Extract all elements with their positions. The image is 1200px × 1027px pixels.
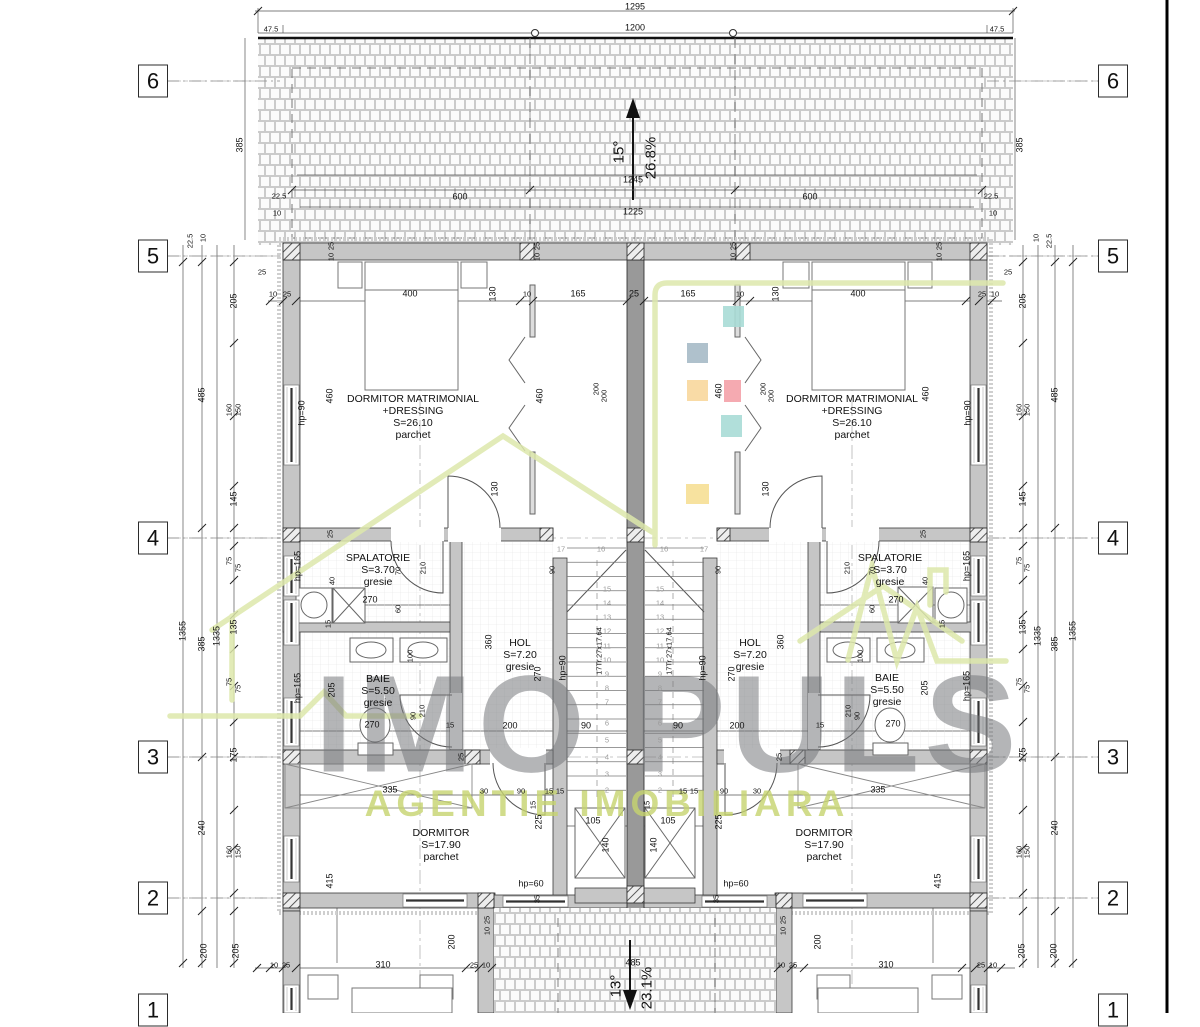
dim-label: 10 [269,290,277,298]
dim-label: 270 [364,721,379,730]
dim-label: 10 [199,234,207,242]
dim-label: 130 [762,481,771,496]
dim-label: 10 [729,253,737,261]
dim-label: 15 [603,585,611,593]
dim-label: 15 [679,787,687,795]
dim-label: 200 [448,934,457,949]
dim-label: 90 [409,712,417,720]
dim-label: 210 [419,562,427,575]
dim-label: 60 [394,605,402,613]
dim-label: 105 [585,817,600,826]
dim-label: 1295 [625,3,645,12]
dim-label: 13° [609,975,624,998]
dim-label: 100 [856,650,864,663]
dim-label: 200 [729,722,744,731]
room-label: DORMITOR MATRIMONIAL+DRESSINGS=26.10parc… [786,393,918,441]
dim-label: 130 [772,286,781,301]
floor-plan-page: { "watermark": { "brand": "IMO PULS", "t… [0,0,1200,1013]
dim-label: 5 [658,736,662,744]
dim-label: 130 [491,481,500,496]
dim-label: 15 [938,620,946,628]
dim-label: 40 [328,577,336,585]
dim-label: 210 [843,562,851,575]
dim-label: 40 [921,577,929,585]
dim-label: 15 [656,585,664,593]
annotation-layer: 129547.5120047.538538560060022.51022.510… [0,0,1200,1013]
dim-label: 6 [658,719,662,727]
dim-label: 1225 [623,208,643,217]
dim-label: 35 [712,895,720,903]
dim-label: 10 [270,961,278,969]
dim-label: 270 [362,596,377,605]
dim-label: 145 [1019,491,1028,506]
dim-label: 25 [533,242,541,250]
dim-label: 23.1% [640,967,655,1010]
dim-label: 10 [327,253,335,261]
dim-label: 15 [816,721,824,729]
room-label: BAIES=5.50gresie [870,672,904,708]
dim-label: hp=60 [518,880,543,889]
dim-label: 30 [480,787,488,795]
dim-label: 360 [777,634,786,649]
grid-bubble: 4 [138,522,168,555]
dim-label: 90 [548,566,556,574]
dim-label: 135 [1019,619,1028,634]
dim-label: 205 [230,293,239,308]
dim-label: 210 [418,705,426,718]
dim-label: 10 [523,290,531,298]
dim-label: hp=90 [699,655,708,680]
dim-label: 200 [767,390,775,403]
dim-label: 140 [650,837,659,852]
dim-label: 90 [581,722,591,731]
dim-label: 25 [282,961,290,969]
dim-label: 12 [603,627,611,635]
dim-label: 3 [658,770,662,778]
dim-label: 10 [779,927,787,935]
dim-label: 385 [198,636,207,651]
dim-label: 335 [870,786,885,795]
dim-label: 600 [802,193,817,202]
dim-label: 400 [402,290,417,299]
dim-label: 25 [935,242,943,250]
grid-bubble: 3 [138,741,168,774]
dim-label: 460 [922,386,931,401]
dim-label: 25 [919,530,927,538]
dim-label: 6 [605,719,609,727]
dim-label: 16 [660,545,668,553]
dim-label: 165 [570,290,585,299]
dim-label: 9 [658,670,662,678]
dim-label: 205 [232,943,241,958]
dim-label: 10 [483,927,491,935]
dim-label: hp=90 [964,400,973,425]
grid-bubble: 6 [1098,65,1128,98]
dim-label: 100 [406,650,414,663]
dim-label: 225 [535,814,544,829]
dim-label: 15 [529,801,537,809]
dim-label: 10 [991,290,999,298]
dim-label: 25 [457,753,465,761]
dim-label: 75 [234,564,242,572]
dim-label: 10 [533,253,541,261]
dim-label: 17Tr.27x17.64 [595,627,603,675]
dim-label: 200 [1050,943,1059,958]
dim-label: 15 [446,721,454,729]
dim-label: 225 [715,814,724,829]
grid-bubble: 1 [1098,994,1128,1027]
dim-label: 13 [656,613,664,621]
dim-label: 8 [658,684,662,692]
dim-label: 75 [1023,685,1031,693]
dim-label: 90 [517,787,525,795]
dim-label: 385 [1051,636,1060,651]
dim-label: 90 [673,722,683,731]
dim-label: hp=165 [963,551,972,581]
dim-label: hp=165 [294,673,303,703]
dim-label: 25 [283,290,291,298]
dim-label: 3 [605,770,609,778]
dim-label: 15 [324,620,332,628]
dim-label: 15 [690,787,698,795]
grid-bubble: 1 [138,994,168,1027]
dim-label: 25 [775,753,783,761]
dim-label: 460 [326,388,335,403]
dim-label: 385 [236,137,245,152]
dim-label: 11 [603,642,611,650]
dim-label: 75 [234,685,242,693]
dim-label: 205 [921,680,930,695]
dim-label: 205 [1019,293,1028,308]
room-label: HOLS=7.20gresie [503,637,537,673]
room-label: BAIES=5.50gresie [361,673,395,709]
dim-label: 25 [327,242,335,250]
dim-label: 12 [656,627,664,635]
dim-label: 240 [1051,820,1060,835]
dim-label: hp=60 [723,880,748,889]
dim-label: 22.5 [272,192,287,200]
grid-bubble: 3 [1098,741,1128,774]
dim-label: 7 [605,698,609,706]
dim-label: 200 [600,390,608,403]
dim-label: 30 [753,787,761,795]
dim-label: 2 [658,786,662,794]
dim-label: 270 [885,720,900,729]
dim-label: 9 [605,670,609,678]
dim-label: 135 [230,619,239,634]
dim-label: 10 [482,961,490,969]
dim-label: 10 [273,209,281,217]
dim-label: hp=165 [294,551,303,581]
dim-label: 90 [853,712,861,720]
dim-label: 10 [1032,234,1040,242]
dim-label: 485 [198,387,207,402]
dim-label: 25 [258,268,266,276]
dim-label: 270 [888,596,903,605]
dim-label: 5 [605,736,609,744]
grid-bubble: 2 [1098,882,1128,915]
dim-label: 4 [605,753,609,761]
grid-bubble: 4 [1098,522,1128,555]
dim-label: 4 [658,753,662,761]
dim-label: 25 [978,290,986,298]
dim-label: 25 [1004,268,1012,276]
dim-label: 75 [225,557,233,565]
dim-label: 485 [1051,387,1060,402]
dim-label: 13 [603,613,611,621]
dim-label: 15 [643,801,651,809]
dim-label: 25 [977,961,985,969]
grid-bubble: 2 [138,882,168,915]
dim-label: 10 [989,961,997,969]
dim-label: 1355 [1069,621,1078,641]
dim-label: 22.5 [186,234,194,249]
room-label: DORMITOR MATRIMONIAL+DRESSINGS=26.10parc… [347,393,479,441]
dim-label: hp=90 [559,655,568,680]
dim-label: 400 [850,290,865,299]
dim-label: 460 [715,383,724,398]
dim-label: 10 [603,656,611,664]
dim-label: 15 [556,787,564,795]
dim-label: 160 [225,404,233,417]
dim-label: 175 [230,747,239,762]
dim-label: 25 [729,242,737,250]
dim-label: 26.8% [644,137,659,180]
dim-label: 22.5 [1045,234,1053,249]
room-label: HOLS=7.20gresie [733,637,767,673]
dim-label: 1355 [179,621,188,641]
dim-label: 15 [545,787,553,795]
grid-bubble: 6 [138,65,168,98]
dim-label: 60 [868,605,876,613]
dim-label: 25 [789,961,797,969]
dim-label: 150 [234,404,242,417]
dim-label: 90 [720,787,728,795]
dim-label: 140 [602,837,611,852]
dim-label: 210 [844,705,852,718]
dim-label: 16 [597,545,605,553]
dim-label: 17 [557,545,565,553]
dim-label: 25 [779,916,787,924]
dim-label: 385 [1016,137,1025,152]
dim-label: 200 [814,934,823,949]
dim-label: 8 [605,684,609,692]
dim-label: 205 [1018,943,1027,958]
dim-label: 310 [375,961,390,970]
dim-label: 10 [656,656,664,664]
room-label: SPALATORIES=3.70gresie [346,552,410,588]
dim-label: 1335 [213,626,222,646]
dim-label: 17Tr.27x17.64 [665,627,673,675]
dim-label: 2 [605,786,609,794]
dim-label: 22.5 [984,192,999,200]
dim-label: 90 [714,566,722,574]
dim-label: hp=90 [298,400,307,425]
room-label: SPALATORIES=3.70gresie [858,552,922,588]
dim-label: 25 [470,961,478,969]
dim-label: 25 [483,916,491,924]
dim-label: 11 [656,642,664,650]
dim-label: 205 [328,682,337,697]
dim-label: 130 [489,286,498,301]
dim-label: 415 [326,873,335,888]
dim-label: 160 [225,846,233,859]
dim-label: 14 [656,599,664,607]
dim-label: 7 [658,698,662,706]
dim-label: 175 [1019,747,1028,762]
dim-label: 150 [1023,404,1031,417]
dim-label: 150 [234,846,242,859]
dim-label: 75 [225,678,233,686]
dim-label: 10 [989,209,997,217]
dim-label: 200 [200,943,209,958]
grid-bubble: 5 [138,240,168,273]
dim-label: 200 [502,722,517,731]
dim-label: 1200 [625,24,645,33]
dim-label: 360 [485,634,494,649]
dim-label: 75 [1023,564,1031,572]
dim-label: hp=165 [963,671,972,701]
dim-label: 145 [230,491,239,506]
room-label: DORMITORS=17.90parchet [796,827,853,863]
dim-label: 14 [603,599,611,607]
dim-label: 25 [326,530,334,538]
dim-label: 17 [700,545,708,553]
dim-label: 240 [198,820,207,835]
dim-label: 335 [382,786,397,795]
grid-bubble: 5 [1098,240,1128,273]
dim-label: 10 [736,290,744,298]
dim-label: 150 [1023,846,1031,859]
dim-label: 35 [533,895,541,903]
dim-label: 105 [660,817,675,826]
dim-label: 165 [680,290,695,299]
dim-label: 10 [935,253,943,261]
dim-label: 25 [629,290,639,299]
dim-label: 1245 [623,176,643,185]
dim-label: 460 [536,388,545,403]
dim-label: 415 [934,873,943,888]
room-label: DORMITORS=17.90parchet [413,827,470,863]
dim-label: 47.5 [990,25,1005,33]
dim-label: 47.5 [264,25,279,33]
dim-label: 15° [612,141,627,164]
dim-label: 10 [777,961,785,969]
dim-label: 310 [878,961,893,970]
dim-label: 600 [452,193,467,202]
dim-label: 1335 [1034,626,1043,646]
